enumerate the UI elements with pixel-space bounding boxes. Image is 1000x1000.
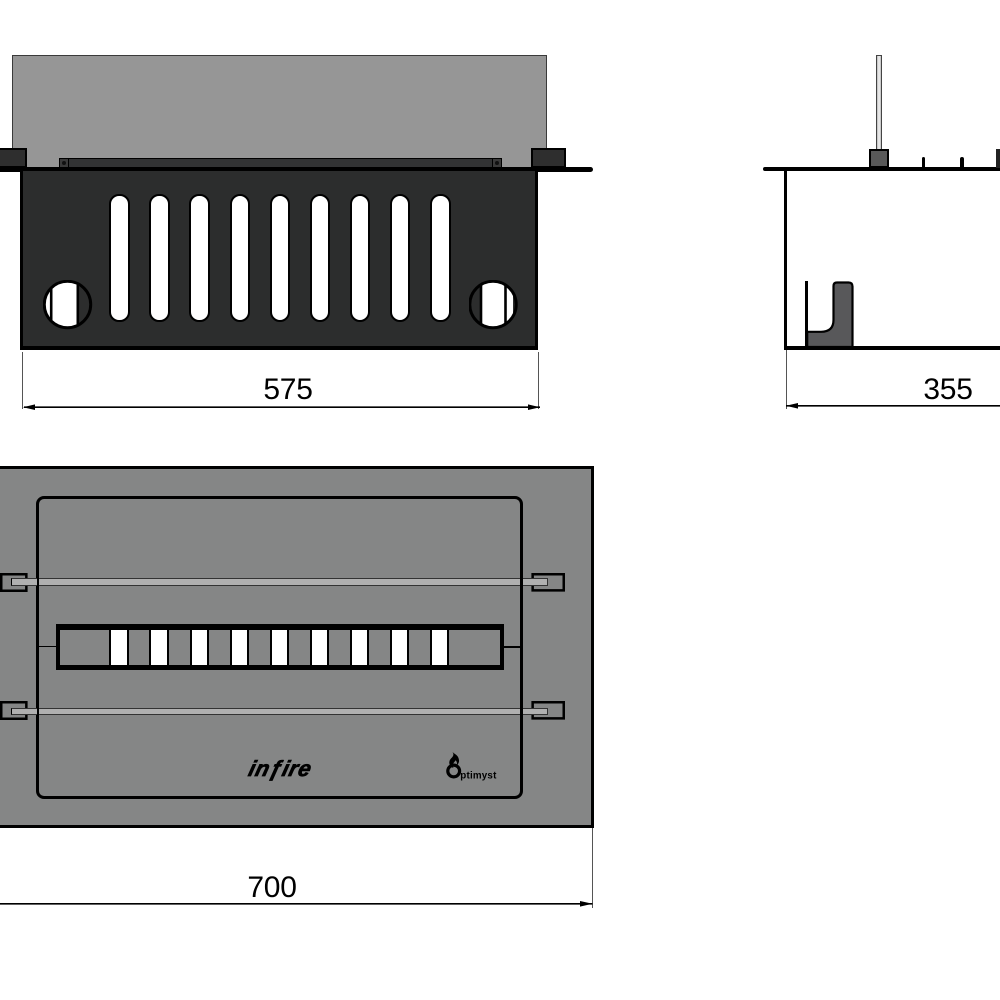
svg-text:ptimyst: ptimyst [460, 771, 497, 782]
